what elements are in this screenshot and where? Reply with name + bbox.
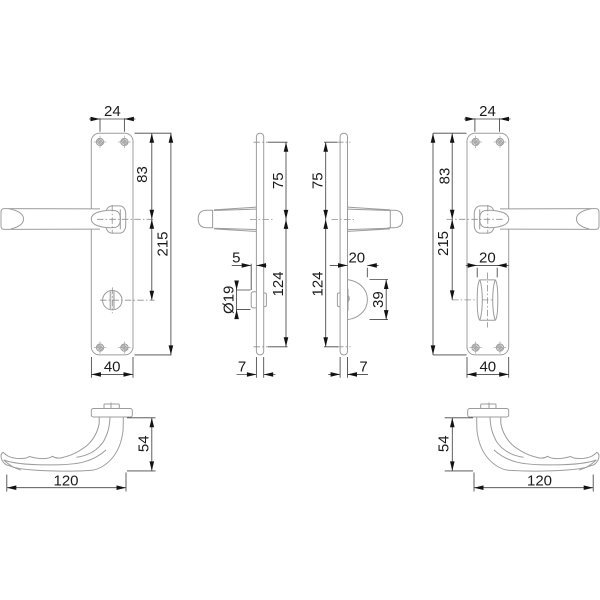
svg-text:7: 7 (359, 358, 367, 375)
svg-text:83: 83 (134, 166, 151, 183)
svg-text:120: 120 (53, 472, 78, 489)
svg-text:120: 120 (527, 472, 552, 489)
svg-text:39: 39 (370, 291, 387, 308)
svg-text:124: 124 (270, 271, 287, 296)
svg-text:20: 20 (348, 249, 365, 266)
svg-text:54: 54 (135, 435, 152, 452)
svg-text:75: 75 (309, 172, 326, 189)
svg-text:40: 40 (104, 358, 121, 375)
svg-text:54: 54 (436, 435, 453, 452)
svg-text:24: 24 (479, 103, 496, 120)
svg-text:7: 7 (238, 358, 246, 375)
svg-text:40: 40 (479, 358, 496, 375)
svg-text:124: 124 (309, 271, 326, 296)
svg-text:20: 20 (479, 249, 496, 266)
svg-text:Ø19: Ø19 (220, 286, 237, 314)
svg-text:215: 215 (154, 231, 171, 256)
svg-text:215: 215 (435, 231, 452, 256)
svg-text:83: 83 (437, 168, 454, 185)
svg-text:75: 75 (270, 172, 287, 189)
svg-text:5: 5 (232, 249, 240, 266)
svg-text:24: 24 (104, 103, 121, 120)
